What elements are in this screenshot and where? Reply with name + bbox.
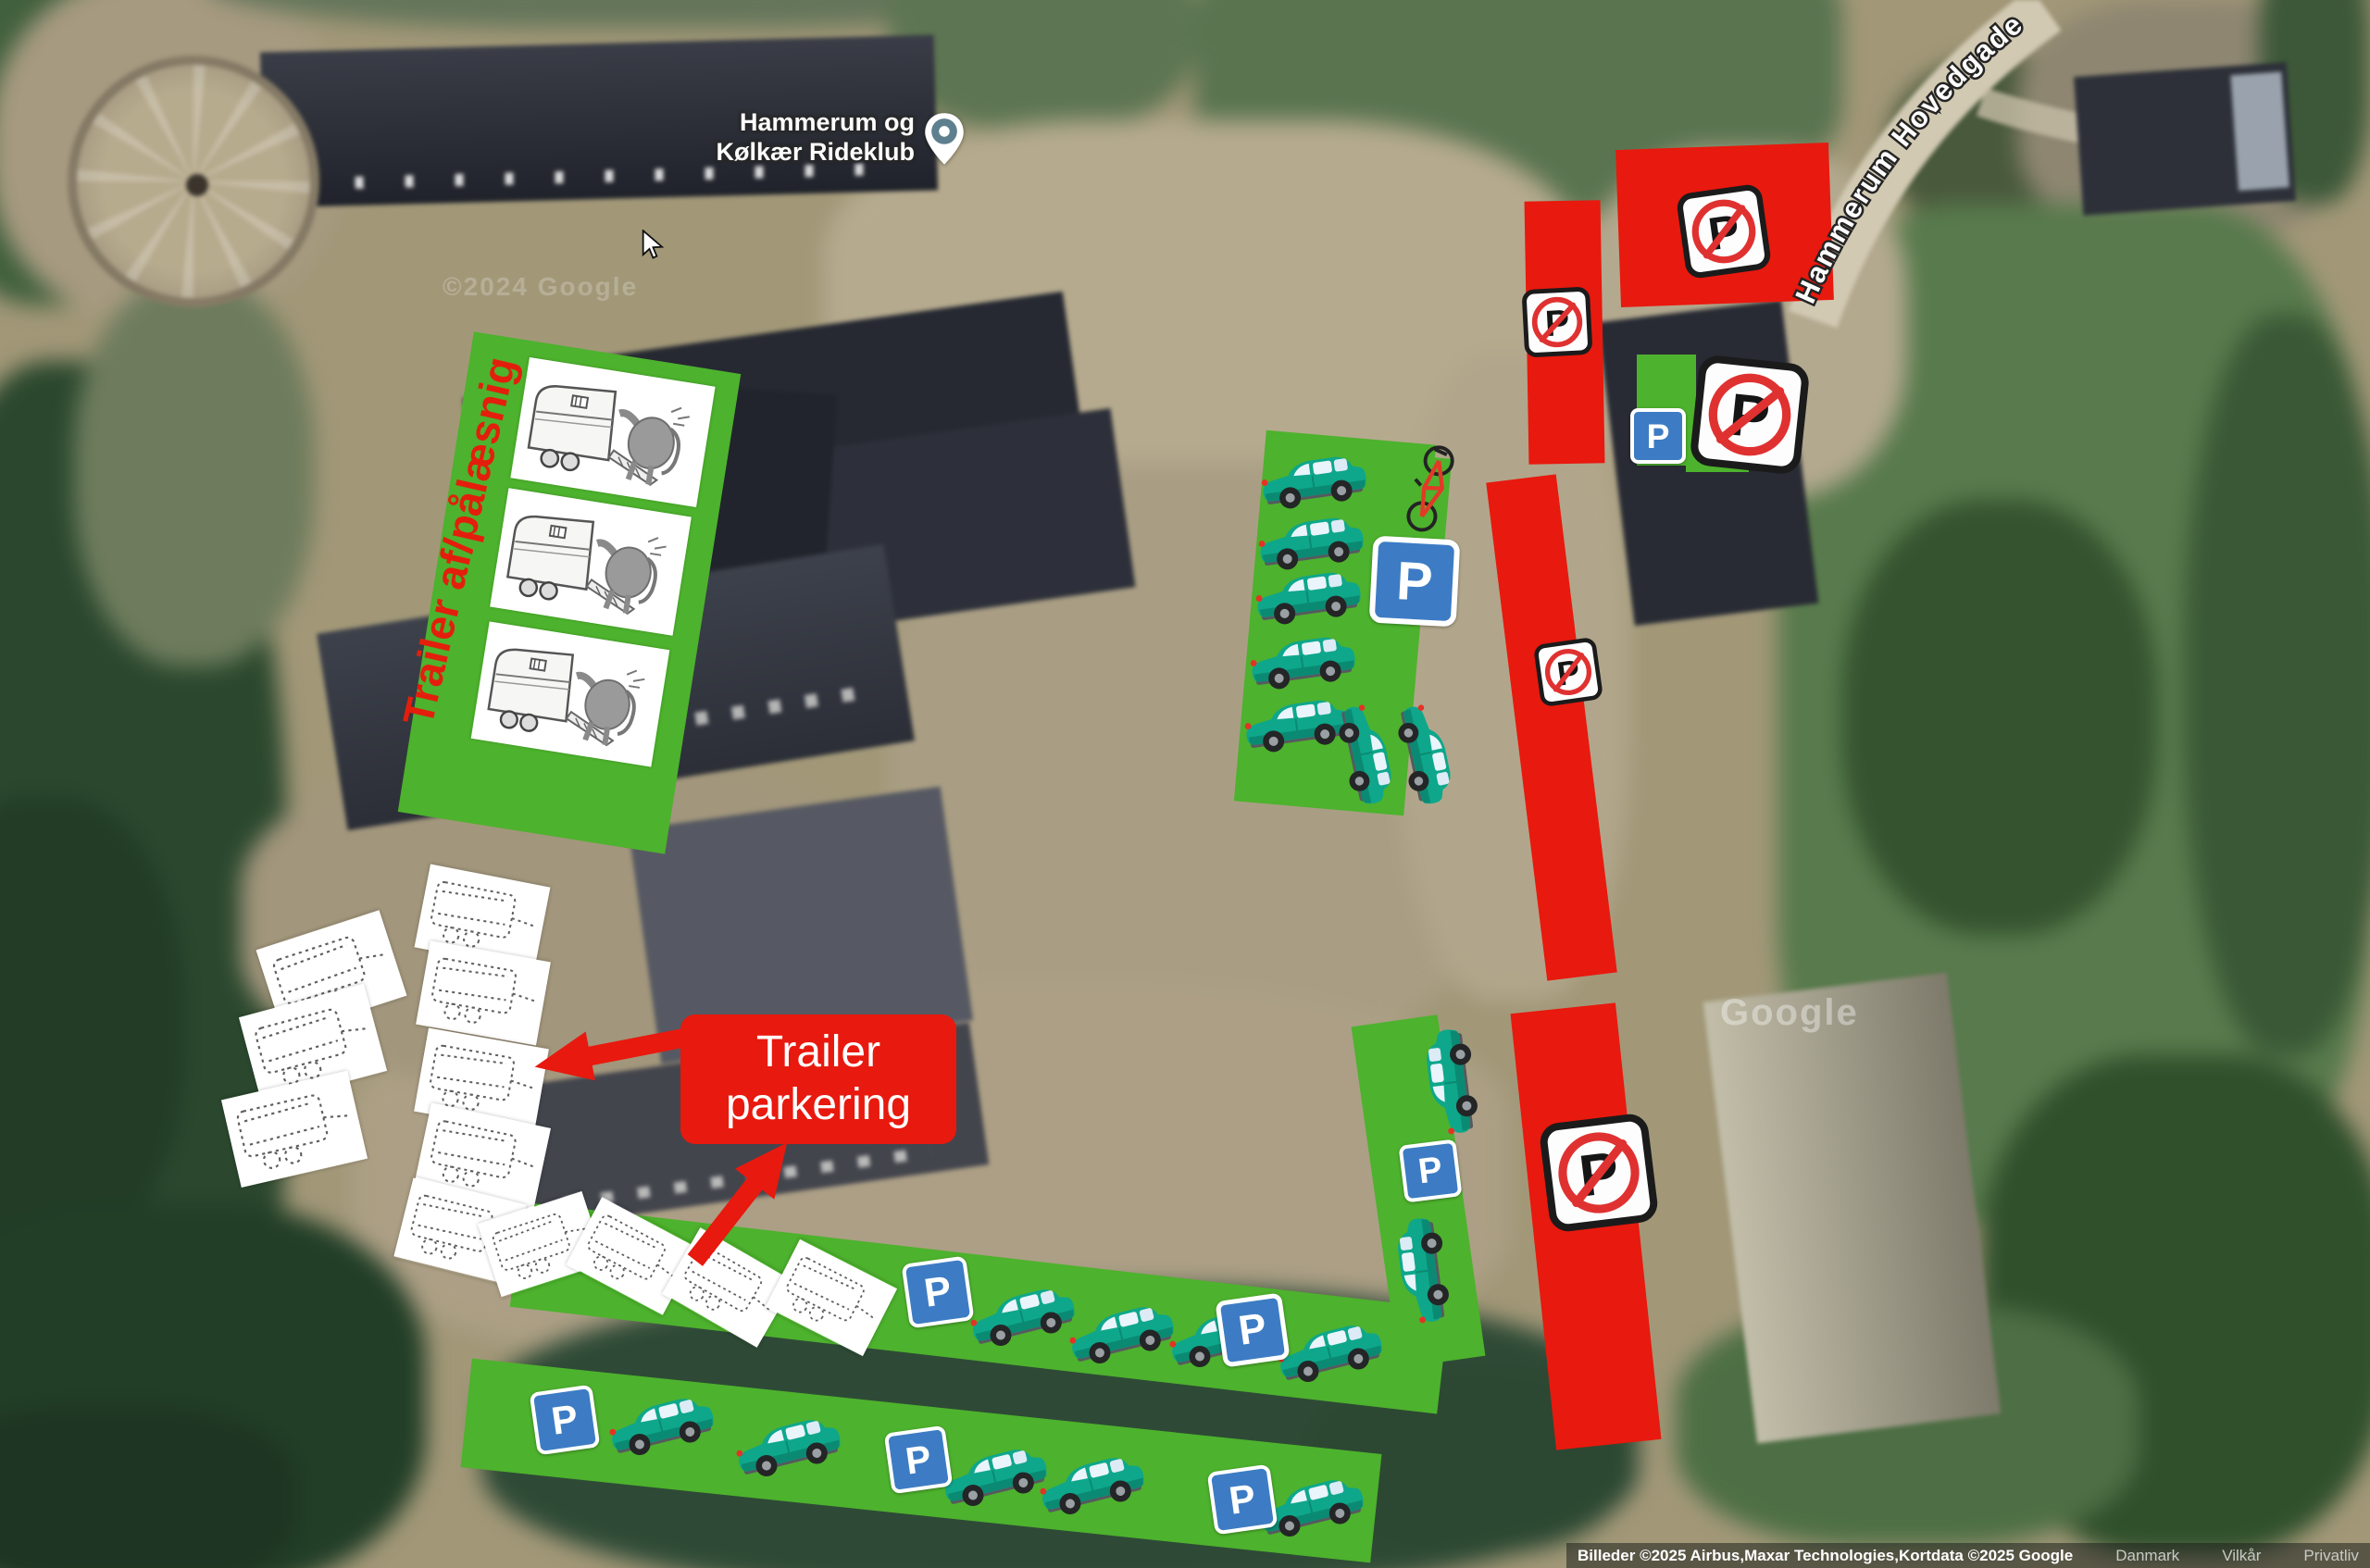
no-parking-sign: P — [1531, 635, 1604, 708]
attribution-link[interactable]: Privatliv — [2303, 1547, 2359, 1564]
no-parking-sign: P — [1687, 352, 1813, 478]
parking-sign: P — [530, 1385, 601, 1456]
place-label-line2: Kølkær Rideklub — [713, 137, 915, 167]
parking-sign: P — [1207, 1464, 1279, 1536]
trailer-parking-label: Trailer parkering — [680, 1014, 956, 1144]
parking-sign: P — [901, 1255, 974, 1328]
horse-walker — [68, 56, 319, 307]
riding-hall-east — [1703, 973, 2002, 1444]
street-label-text: Hammerum Hovedgade — [1789, 7, 2029, 308]
google-watermark: ©2024 Google — [443, 272, 638, 302]
attribution-link[interactable]: Vilkår — [2222, 1547, 2261, 1564]
parking-sign: P — [884, 1425, 954, 1495]
no-parking-sign: P — [1520, 285, 1594, 359]
trailer-parking-label-line1: Trailer — [756, 1027, 880, 1079]
street-label: Hammerum Hovedgade — [1740, 0, 2139, 324]
no-parking-sign: P — [1536, 1110, 1662, 1236]
parking-sign: P — [1215, 1292, 1290, 1367]
satellite-map[interactable]: ©2024 GoogleGoogleGoogle — [0, 0, 2370, 1568]
imagery-copyright: Billeder ©2025 Airbus,Maxar Technologies… — [1578, 1547, 2073, 1565]
parking-sign: P — [1398, 1139, 1462, 1202]
parking-sign: P — [1630, 408, 1686, 464]
google-watermark: Google — [1720, 992, 1859, 1034]
place-label-line1: Hammerum og — [713, 107, 915, 137]
map-attribution-bar: Billeder ©2025 Airbus,Maxar Technologies… — [1566, 1543, 2370, 1568]
place-label: Hammerum og Kølkær Rideklub — [713, 107, 915, 168]
parking-sign: P — [1369, 536, 1461, 628]
mouse-cursor-icon — [641, 230, 667, 261]
place-marker-icon[interactable] — [922, 111, 967, 167]
svg-text:Hammerum Hovedgade: Hammerum Hovedgade — [1789, 7, 2029, 308]
attribution-links: DanmarkVilkårPrivatlivS — [2073, 1547, 2370, 1565]
trailer-parking-label-line2: parkering — [726, 1079, 911, 1132]
attribution-link[interactable]: Danmark — [2115, 1547, 2179, 1564]
